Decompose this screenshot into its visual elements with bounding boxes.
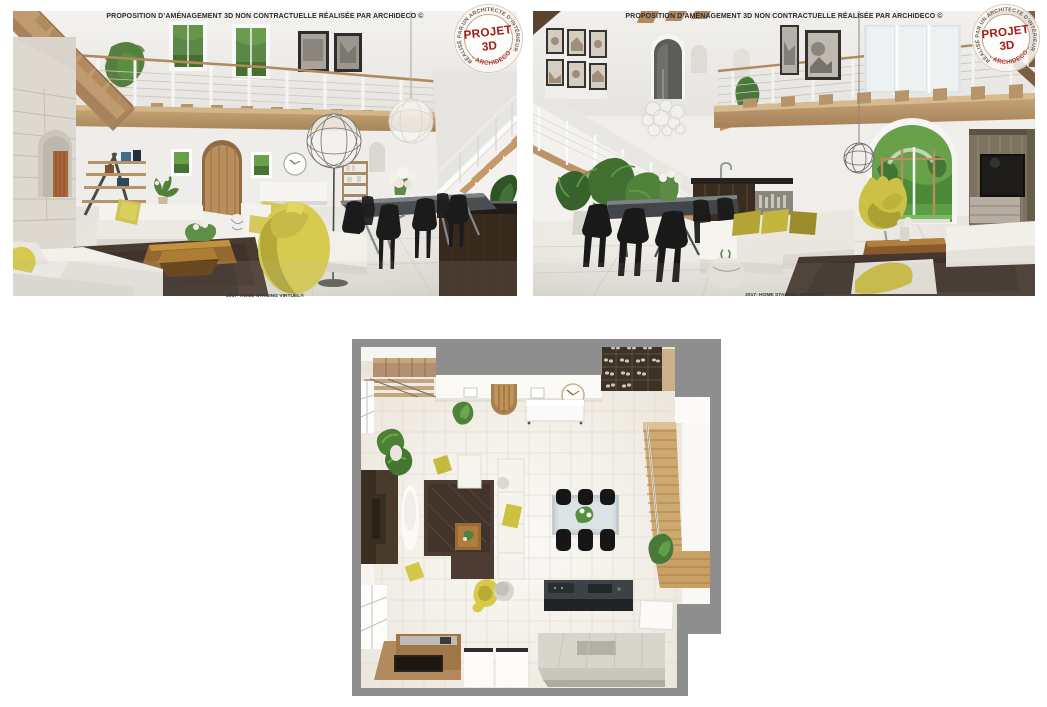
svg-text:3D: 3D: [481, 38, 498, 54]
svg-text:3D: 3D: [999, 38, 1015, 53]
